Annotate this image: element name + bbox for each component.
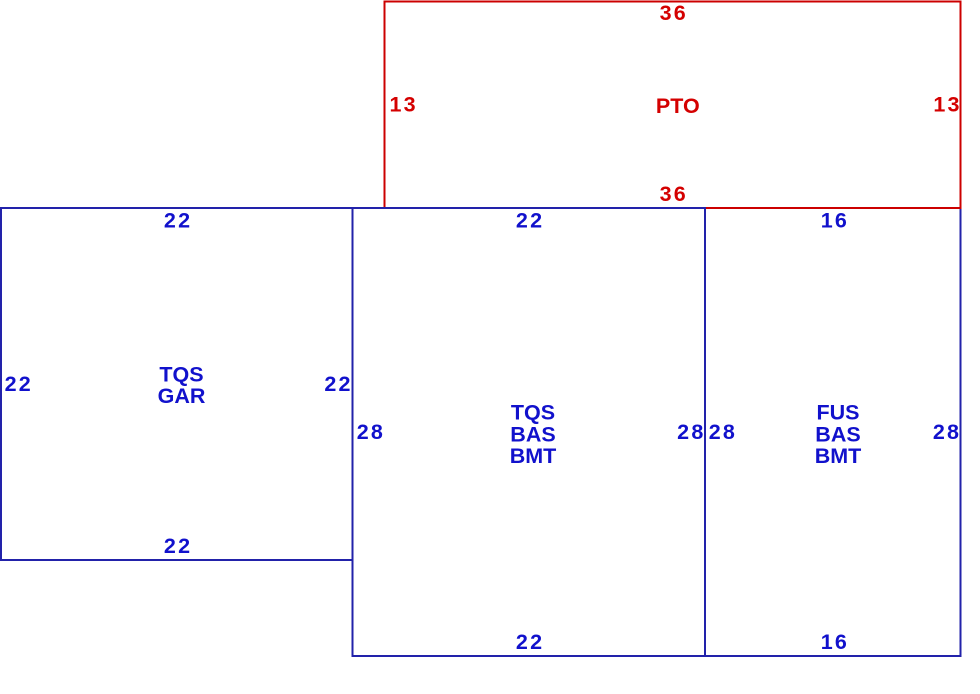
svg-text:22: 22 [164, 209, 192, 233]
svg-text:GAR: GAR [158, 384, 206, 408]
svg-text:22: 22 [5, 372, 33, 396]
svg-text:16: 16 [821, 209, 849, 233]
svg-text:BAS: BAS [510, 422, 555, 446]
svg-text:13: 13 [933, 93, 961, 117]
svg-text:BMT: BMT [815, 444, 862, 468]
svg-text:28: 28 [933, 420, 961, 444]
svg-text:28: 28 [709, 420, 737, 444]
svg-text:BAS: BAS [815, 422, 860, 446]
svg-text:36: 36 [660, 182, 688, 206]
svg-text:22: 22 [164, 534, 192, 558]
svg-text:22: 22 [324, 372, 352, 396]
svg-text:22: 22 [516, 630, 544, 654]
svg-text:TQS: TQS [159, 363, 203, 387]
svg-text:BMT: BMT [510, 444, 557, 468]
svg-text:36: 36 [660, 1, 688, 25]
svg-text:28: 28 [357, 420, 385, 444]
svg-text:13: 13 [390, 93, 418, 117]
svg-text:TQS: TQS [511, 401, 555, 425]
svg-text:28: 28 [677, 420, 705, 444]
svg-text:FUS: FUS [817, 401, 860, 425]
svg-text:PTO: PTO [656, 94, 700, 118]
svg-text:22: 22 [516, 209, 544, 233]
svg-text:16: 16 [821, 630, 849, 654]
